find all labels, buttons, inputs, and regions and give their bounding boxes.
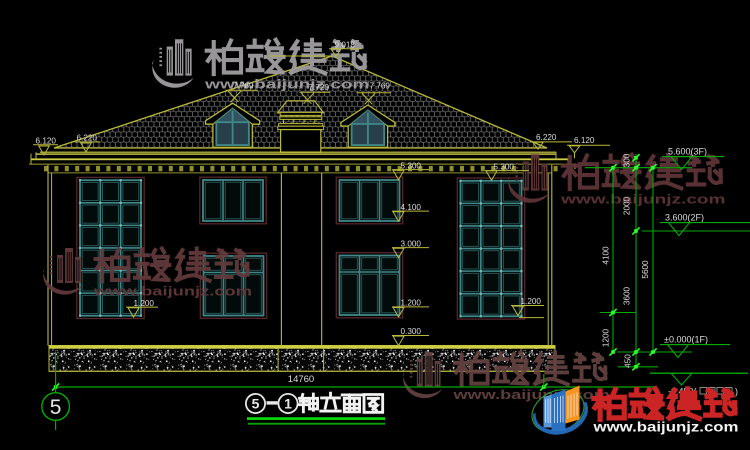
svg-text:3.000: 3.000 (401, 239, 422, 248)
svg-text:7.769: 7.769 (233, 81, 254, 90)
svg-text:6.120: 6.120 (36, 137, 57, 146)
svg-text:7.769: 7.769 (370, 81, 391, 90)
svg-text:3600: 3600 (623, 286, 632, 305)
svg-text:www.baijunjz.com: www.baijunjz.com (592, 420, 738, 435)
svg-text:1: 1 (284, 396, 292, 412)
svg-text:5600: 5600 (641, 260, 650, 279)
svg-text:7.720: 7.720 (309, 83, 330, 92)
svg-text:4.100: 4.100 (401, 203, 422, 212)
svg-text:1.200: 1.200 (134, 299, 155, 308)
svg-text:0.300: 0.300 (401, 327, 422, 336)
svg-text:3.600(2F): 3.600(2F) (665, 212, 704, 222)
svg-text:±0.000(1F): ±0.000(1F) (664, 334, 708, 344)
svg-text:4100: 4100 (602, 246, 611, 265)
svg-text:5.300: 5.300 (494, 162, 515, 171)
svg-text:14760: 14760 (288, 374, 314, 385)
svg-text:1200: 1200 (602, 328, 611, 347)
svg-text:300: 300 (623, 153, 632, 167)
svg-text:450: 450 (624, 354, 633, 368)
svg-text:6.220: 6.220 (77, 134, 98, 143)
svg-text:6.120: 6.120 (574, 136, 595, 145)
svg-text:9.018: 9.018 (335, 40, 356, 49)
svg-text:6.220: 6.220 (536, 133, 557, 142)
svg-text:2000: 2000 (623, 196, 632, 215)
svg-text:1.200: 1.200 (521, 297, 542, 306)
svg-text:5: 5 (50, 396, 62, 419)
svg-text:5: 5 (252, 396, 260, 412)
svg-text:1.200: 1.200 (401, 299, 422, 308)
svg-text:): ) (735, 387, 738, 397)
svg-text:5.600(3F): 5.600(3F) (668, 146, 707, 156)
svg-text:5.300: 5.300 (401, 161, 422, 170)
